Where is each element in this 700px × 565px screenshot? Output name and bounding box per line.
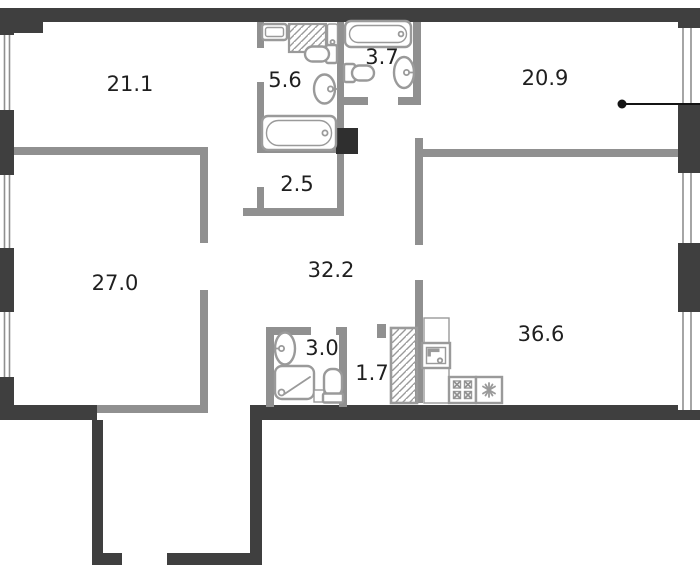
wall-vestibule-left [92,420,103,565]
kitchen-sink-icon [422,343,450,368]
label-room-36-6: 36.6 [518,322,565,346]
window-left-3 [0,312,14,377]
floor-plan-canvas: 21.1 5.6 3.7 20.9 2.5 27.0 32.2 3.0 1.7 … [0,0,700,565]
label-room-32-2: 32.2 [308,258,355,282]
window-left-2 [0,175,14,248]
wall-left-pier [0,22,14,35]
label-room-2-5: 2.5 [280,172,313,196]
stove-icon [449,377,476,403]
wall-27-0-right-upper [200,147,208,243]
window-right-3 [678,312,700,410]
wall-right-pier [678,243,700,312]
wall-1-7-stub [377,324,386,338]
fixtures-room-36-6 [422,318,502,403]
wall-left-pier [0,110,14,175]
window-right-1 [678,28,700,103]
wall-3-0-left [266,327,274,407]
washbasin-inner [266,28,284,37]
entrance-dot-icon [618,100,627,109]
label-room-27-0: 27.0 [92,271,139,295]
shaft-block [336,128,358,154]
wall-27-0-top [14,147,208,155]
wall-bottom-left [0,405,97,420]
wall-left-pier [0,248,14,312]
wall-bottom-right [250,405,700,420]
wall-3-7-right [413,22,421,105]
wall-2-5-door-jamb [257,187,264,208]
ventilation-shaft-icon [391,328,417,403]
wall-27-0-bottom [97,405,208,413]
washbasin-oval-icon [275,333,295,365]
wall-right-pier [678,22,700,28]
water-heater-icon [328,24,338,46]
toilet-icon [305,45,337,63]
wall-vestibule-right [250,420,262,565]
label-room-20-9: 20.9 [522,66,569,90]
wall-vestibule-bottom-left [92,553,122,565]
window-right-2 [678,173,700,243]
label-room-21-1: 21.1 [107,72,154,96]
floor-plan: 21.1 5.6 3.7 20.9 2.5 27.0 32.2 3.0 1.7 … [0,0,700,565]
wall-vestibule-bottom-right [167,553,262,565]
wall-20-9-36-6-divider [415,149,678,157]
label-room-1-7: 1.7 [355,361,388,385]
washbasin-oval-icon [314,75,337,104]
bathtub-icon [262,116,336,150]
bathtub-icon [345,21,411,47]
wall-right-pier [678,103,700,173]
toilet-icon [323,369,343,403]
shower-tray-icon [275,366,314,399]
label-room-3-0: 3.0 [305,336,338,360]
wall-2-5-bottom [243,208,344,216]
window-left-1 [0,35,14,110]
wall-27-0-right-lower [200,290,208,413]
windows [0,28,700,410]
label-room-5-6: 5.6 [268,68,301,92]
label-room-3-7: 3.7 [365,45,398,69]
wall-3-7-bottom [344,97,368,105]
refrigerator-icon [476,377,502,403]
